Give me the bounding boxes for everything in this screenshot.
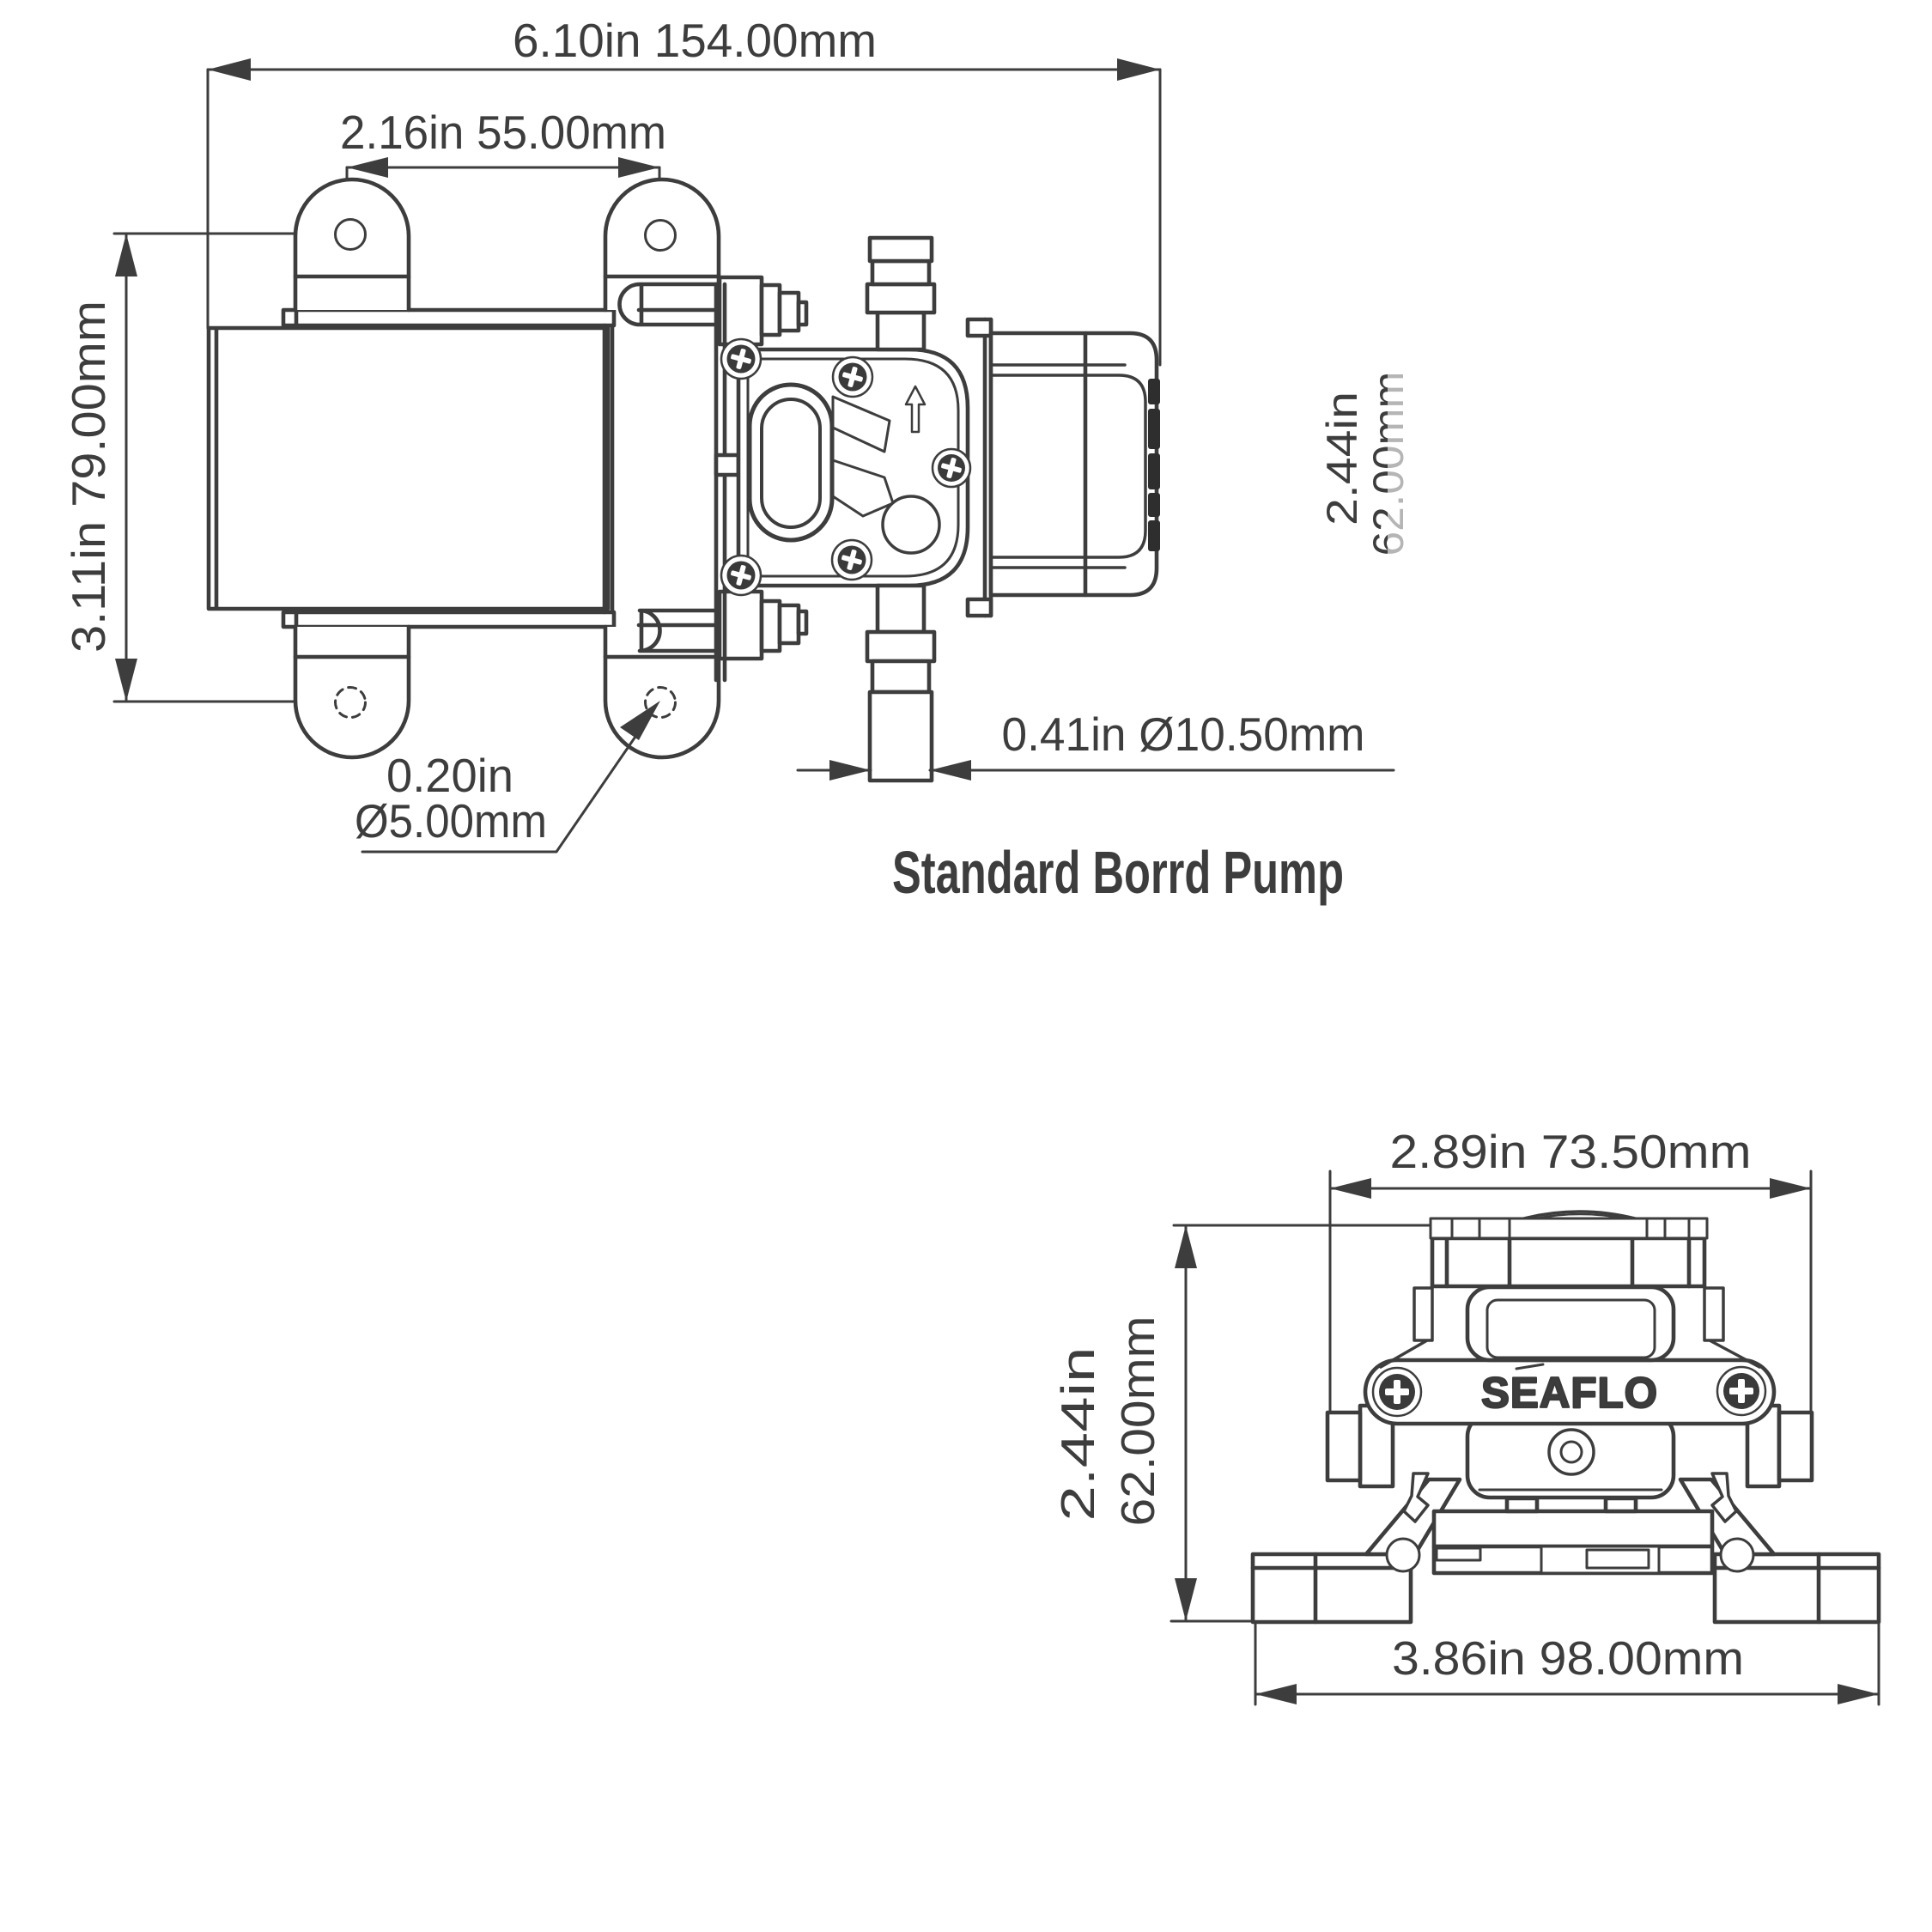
svg-text:6.10in 154.00mm: 6.10in 154.00mm	[513, 14, 877, 67]
svg-text:2.16in 55.00mm: 2.16in 55.00mm	[340, 106, 666, 159]
svg-text:62.00mm: 62.00mm	[1111, 1316, 1164, 1527]
svg-text:2.89in 73.50mm: 2.89in 73.50mm	[1390, 1125, 1752, 1178]
svg-text:SEAFLO: SEAFLO	[1481, 1369, 1658, 1417]
svg-text:Standard Borrd Pump: Standard Borrd Pump	[892, 839, 1344, 906]
svg-text:0.41in Ø10.50mm: 0.41in Ø10.50mm	[1002, 708, 1365, 761]
svg-text:3.86in 98.00mm: 3.86in 98.00mm	[1392, 1631, 1744, 1685]
svg-text:3.11in 79.00mm: 3.11in 79.00mm	[62, 301, 115, 653]
svg-text:Ø5.00mm: Ø5.00mm	[355, 794, 547, 848]
svg-text:2.44in: 2.44in	[1318, 392, 1366, 526]
svg-text:2.44in: 2.44in	[1051, 1347, 1104, 1522]
